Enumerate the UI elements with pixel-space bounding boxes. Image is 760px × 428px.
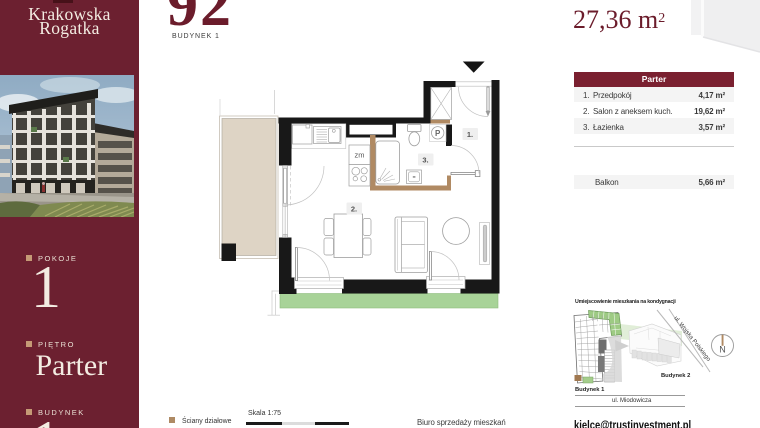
svg-text:1.: 1. — [467, 130, 473, 139]
svg-text:P: P — [435, 129, 441, 138]
svg-text:3.: 3. — [422, 156, 428, 165]
svg-text:N: N — [719, 345, 726, 355]
svg-text:2.: 2. — [351, 205, 357, 214]
svg-text:zm: zm — [355, 151, 365, 160]
